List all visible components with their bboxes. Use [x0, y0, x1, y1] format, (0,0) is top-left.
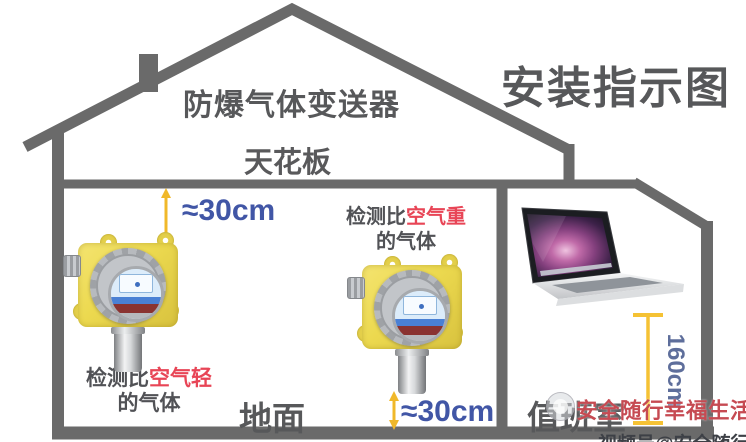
- distance-bottom-label: ≈30cm: [401, 395, 494, 429]
- heavy-gas-highlight: 空气重: [406, 206, 466, 228]
- detector-screen-panel: [119, 274, 153, 292]
- heavy-gas-prefix: 检测比: [346, 206, 406, 228]
- gas-detector-ceiling: [78, 243, 178, 327]
- detector-sensor-probe: [398, 349, 426, 394]
- detector-red-band: [395, 326, 445, 336]
- ground-label: 地面: [239, 392, 305, 440]
- detector-display: [392, 288, 448, 344]
- detector-foot-band: [395, 335, 445, 341]
- light-gas-note: 检测比空气轻 的气体: [79, 366, 219, 416]
- detector-foot-band: [111, 313, 161, 319]
- installation-diagram: 安装指示图 防爆气体变送器 天花板 ≈30cm ≈30cm 地面 值班室 160…: [0, 0, 746, 442]
- heavy-gas-note: 检测比空气重 的气体: [336, 205, 476, 255]
- gas-detector-floor: [362, 265, 462, 349]
- detector-red-band: [111, 304, 161, 314]
- detector-screen-dot: [419, 304, 424, 309]
- light-gas-highlight: 空气轻: [149, 367, 212, 390]
- detector-screen-dot: [135, 282, 140, 287]
- device-title: 防爆气体变送器: [183, 80, 400, 124]
- detector-screen-panel: [403, 296, 437, 314]
- conduit-connector: [347, 277, 365, 299]
- conduit-connector: [63, 255, 81, 277]
- detector-screen: [395, 291, 445, 319]
- detector-sensor-probe: [114, 327, 142, 372]
- arrow-bottom-30cm: [389, 391, 399, 430]
- laptop-computer: [522, 208, 684, 306]
- detector-bezel: [374, 270, 450, 346]
- light-gas-suffix: 的气体: [118, 392, 181, 415]
- watermark-bottom-cut-text: 视频号@安全随行幸福生活: [598, 429, 746, 442]
- distance-top-label: ≈30cm: [182, 194, 275, 228]
- detector-display: [108, 266, 164, 322]
- ceiling-label: 天花板: [244, 139, 331, 181]
- detector-bezel-ring: [380, 276, 444, 340]
- detector-screen: [111, 269, 161, 297]
- detector-bezel: [90, 248, 166, 324]
- watermark-logo-icon: [546, 392, 575, 421]
- detector-bezel-ring: [96, 254, 160, 318]
- watermark-brand-text: 安全随行幸福生活: [576, 394, 746, 425]
- page-title: 安装指示图: [501, 52, 731, 116]
- duty-room-roof-slope: [634, 182, 708, 227]
- heavy-gas-suffix: 的气体: [376, 231, 436, 253]
